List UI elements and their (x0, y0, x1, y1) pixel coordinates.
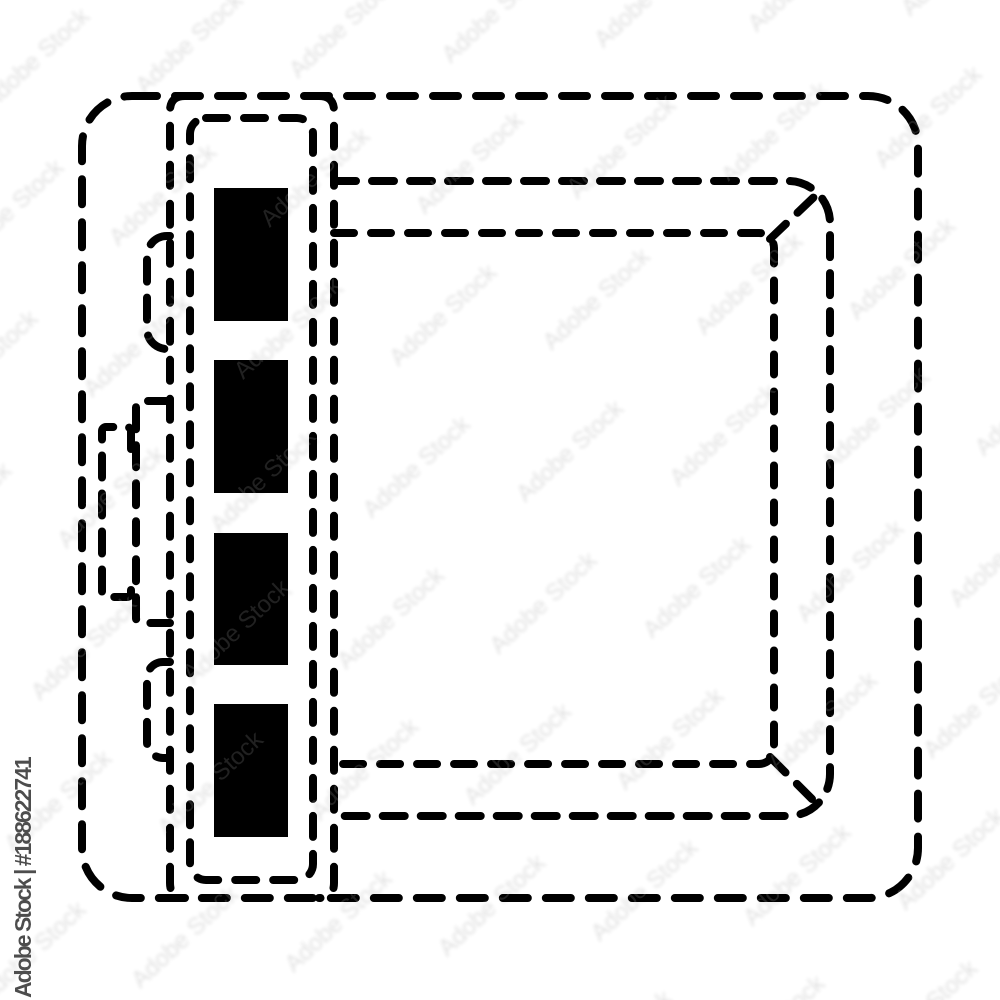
svg-text:Adobe Stock | #188622741: Adobe Stock | #188622741 (10, 756, 36, 998)
